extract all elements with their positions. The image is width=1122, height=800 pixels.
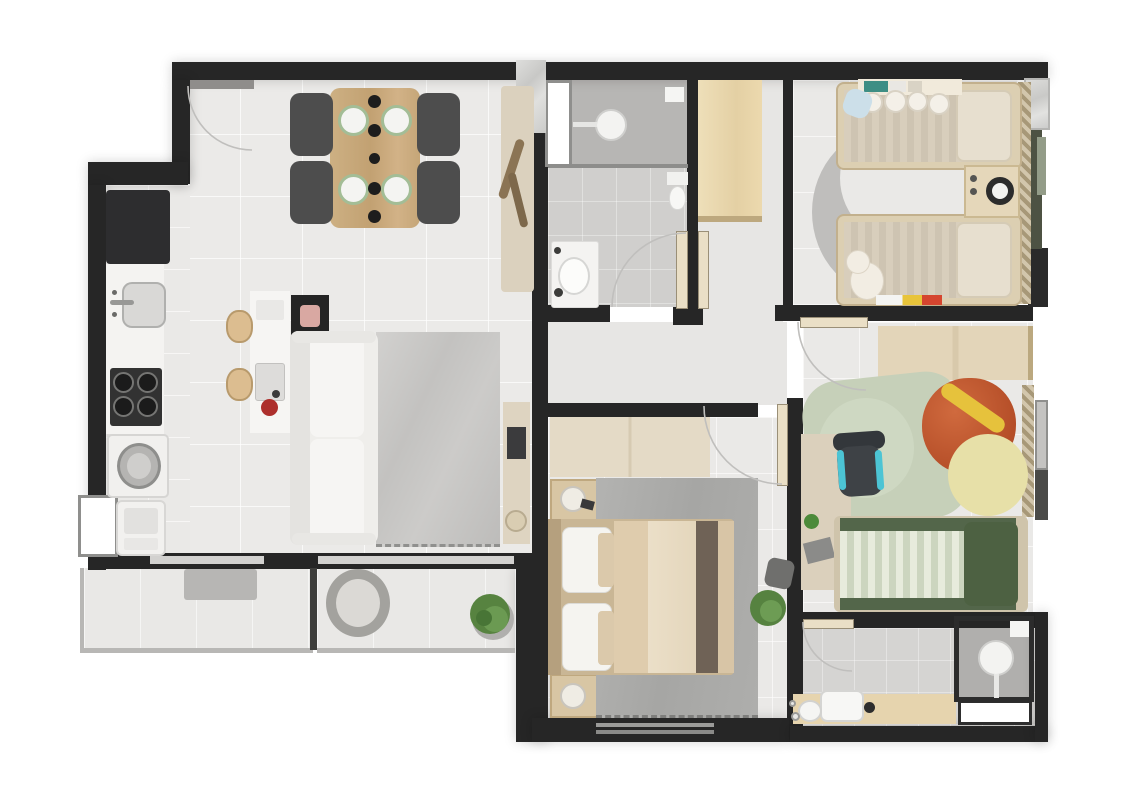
sofa-armrest	[292, 533, 376, 545]
shower-arm-bath2	[994, 674, 999, 698]
table-centerpiece	[368, 95, 381, 108]
table-centerpiece	[368, 124, 381, 137]
espresso-cup	[272, 390, 280, 398]
wall-teen-right-dark	[1035, 470, 1048, 520]
wall-hall-kids	[783, 80, 793, 310]
nightstand-knob	[970, 188, 977, 195]
vanity-knob	[554, 288, 563, 297]
wall-bath2-right	[1035, 612, 1048, 742]
master-bed-runner	[696, 521, 718, 673]
bath1-door-leaf	[676, 231, 688, 309]
faucet-knob	[112, 290, 117, 295]
master-wardrobe	[550, 417, 710, 477]
wall-kitchen-top	[88, 162, 188, 185]
window-service-area	[78, 495, 118, 557]
sofa-backrest	[290, 331, 310, 545]
shower-head-bath2	[978, 640, 1014, 676]
master-headboard	[548, 519, 561, 675]
window-bath2	[958, 700, 1032, 725]
hall-door-leaf	[698, 231, 709, 309]
window-teen	[1035, 400, 1048, 470]
balcony-divider	[310, 568, 317, 650]
kitchen-faucet	[110, 300, 134, 305]
vanity-basin-bath1	[558, 257, 590, 295]
master-bed-sheet	[614, 521, 648, 673]
master-lamp	[560, 683, 586, 709]
window-bath1	[545, 80, 572, 167]
teen-wardrobe-strip	[1022, 385, 1034, 517]
sliding-door-panel-2	[318, 556, 514, 564]
sofa-cushion	[310, 337, 364, 437]
sliding-door-panel-1	[150, 556, 264, 564]
laundry-tub-ledge	[124, 538, 158, 550]
dining-chair	[290, 93, 333, 156]
dining-chair	[290, 161, 333, 224]
shelf-book-teal	[864, 81, 888, 92]
kids-lamp	[986, 177, 1014, 205]
kitchen-sink	[122, 282, 166, 328]
wall-master-top	[548, 403, 758, 417]
hallway-cabinet-edge	[698, 216, 762, 222]
bar-stool	[226, 310, 253, 343]
faucet-knob	[112, 312, 117, 317]
wall-living-master-upper	[532, 133, 548, 395]
hallway-cabinet	[698, 80, 762, 222]
sofa-cushion	[310, 439, 364, 539]
wall-master-west-block	[516, 568, 548, 742]
bath2-flush-ring	[789, 700, 796, 707]
bar-stool	[226, 368, 253, 401]
toilet-bowl-bath1	[669, 186, 686, 210]
wall-kids-right-dark	[1028, 248, 1048, 307]
master-bed-duvet	[648, 521, 696, 673]
teen-wardrobe	[878, 326, 1033, 380]
dining-chair	[417, 93, 460, 156]
master-sliding-track-2	[596, 730, 714, 734]
teen-wardrobe-edge	[1028, 326, 1033, 380]
balcony-plant-leaves-3	[476, 610, 492, 626]
shower-niche-bath1	[665, 87, 684, 102]
wall-living-master-lower	[532, 395, 548, 555]
dinner-plate	[381, 105, 412, 136]
desk-plant	[804, 514, 819, 529]
fridge	[106, 190, 170, 264]
bath1-glass-partition	[548, 164, 688, 168]
balcony-rail-bottom-right	[317, 648, 515, 653]
bath2-toilet	[798, 700, 822, 722]
shower-arm-bath1	[573, 122, 597, 127]
balcony-rail-bottom-left	[80, 648, 313, 653]
balcony-lounge-chair	[326, 569, 390, 637]
floor-plan-screenshot	[0, 0, 1122, 800]
toilet-tank-bath1	[667, 172, 688, 185]
nightstand-knob	[970, 175, 977, 182]
television	[507, 427, 526, 459]
dinner-plate	[381, 174, 412, 205]
kids-door-leaf	[800, 317, 868, 328]
teen-bed-duvet	[840, 531, 968, 598]
wall-bath1-hall	[687, 80, 698, 325]
living-room-rug	[376, 332, 500, 547]
wall-bath2-bottom	[790, 726, 1047, 742]
laundry-tub-basin	[124, 508, 158, 534]
side-lamp	[505, 510, 527, 532]
red-kettle	[261, 399, 278, 416]
cooktop-burner	[137, 396, 158, 417]
balcony-rail-left	[80, 568, 84, 652]
floor-corridor	[548, 322, 787, 405]
wall-top	[172, 62, 1048, 80]
master-sliding-track-1	[596, 723, 714, 727]
kids-bed-pillow-top	[956, 90, 1012, 162]
island-cutting-board	[256, 300, 284, 320]
master-bed-foot	[718, 521, 734, 673]
dining-chair	[417, 161, 460, 224]
dinner-plate	[338, 105, 369, 136]
master-accent-pillow	[598, 611, 614, 665]
cooktop-burner	[113, 396, 134, 417]
dinner-plate	[338, 174, 369, 205]
cooktop-burner	[137, 372, 158, 393]
table-centerpiece	[368, 182, 381, 195]
shower-niche-bath2	[1010, 621, 1029, 637]
washer-drum-inner	[127, 453, 151, 479]
wall-corridor-stub	[673, 307, 703, 325]
teddy-bear-head	[846, 250, 870, 274]
bath2-flush-ring	[791, 712, 800, 721]
island-sink	[255, 363, 285, 401]
bath2-door-leaf	[803, 619, 854, 629]
master-plant-leaves-2	[760, 600, 782, 622]
kids-bed-pillow-bottom	[956, 222, 1012, 298]
decor-frame-art	[300, 305, 320, 327]
bath2-drain-dot	[864, 702, 875, 713]
sofa-armrest	[292, 331, 376, 343]
footboard-sticker	[876, 295, 942, 305]
plush-toy	[928, 93, 950, 115]
balcony-bench	[184, 569, 257, 600]
cooktop-burner	[113, 372, 134, 393]
table-centerpiece	[369, 153, 380, 164]
teen-yellow-rug	[948, 434, 1028, 516]
bath2-basin	[820, 690, 864, 722]
vanity-knob	[554, 247, 561, 254]
teen-bed-pillow	[964, 522, 1018, 606]
shower-head-bath1	[595, 109, 627, 141]
master-accent-pillow	[598, 533, 614, 587]
entrance-door-leaf	[190, 80, 254, 89]
plush-toy	[907, 91, 928, 112]
wall-left	[88, 185, 106, 509]
table-centerpiece	[368, 210, 381, 223]
kids-window-olive-inner	[1037, 137, 1046, 195]
plush-toy	[884, 90, 907, 113]
master-door-leaf	[777, 404, 788, 486]
